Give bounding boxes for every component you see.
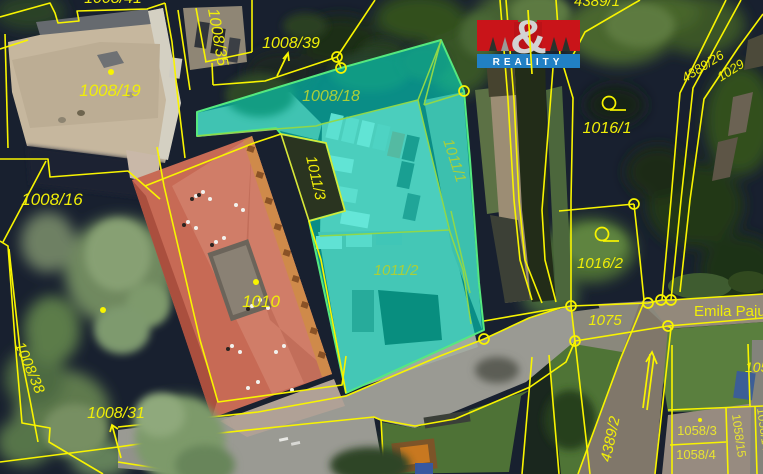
svg-text:REALITY: REALITY [493,57,564,68]
